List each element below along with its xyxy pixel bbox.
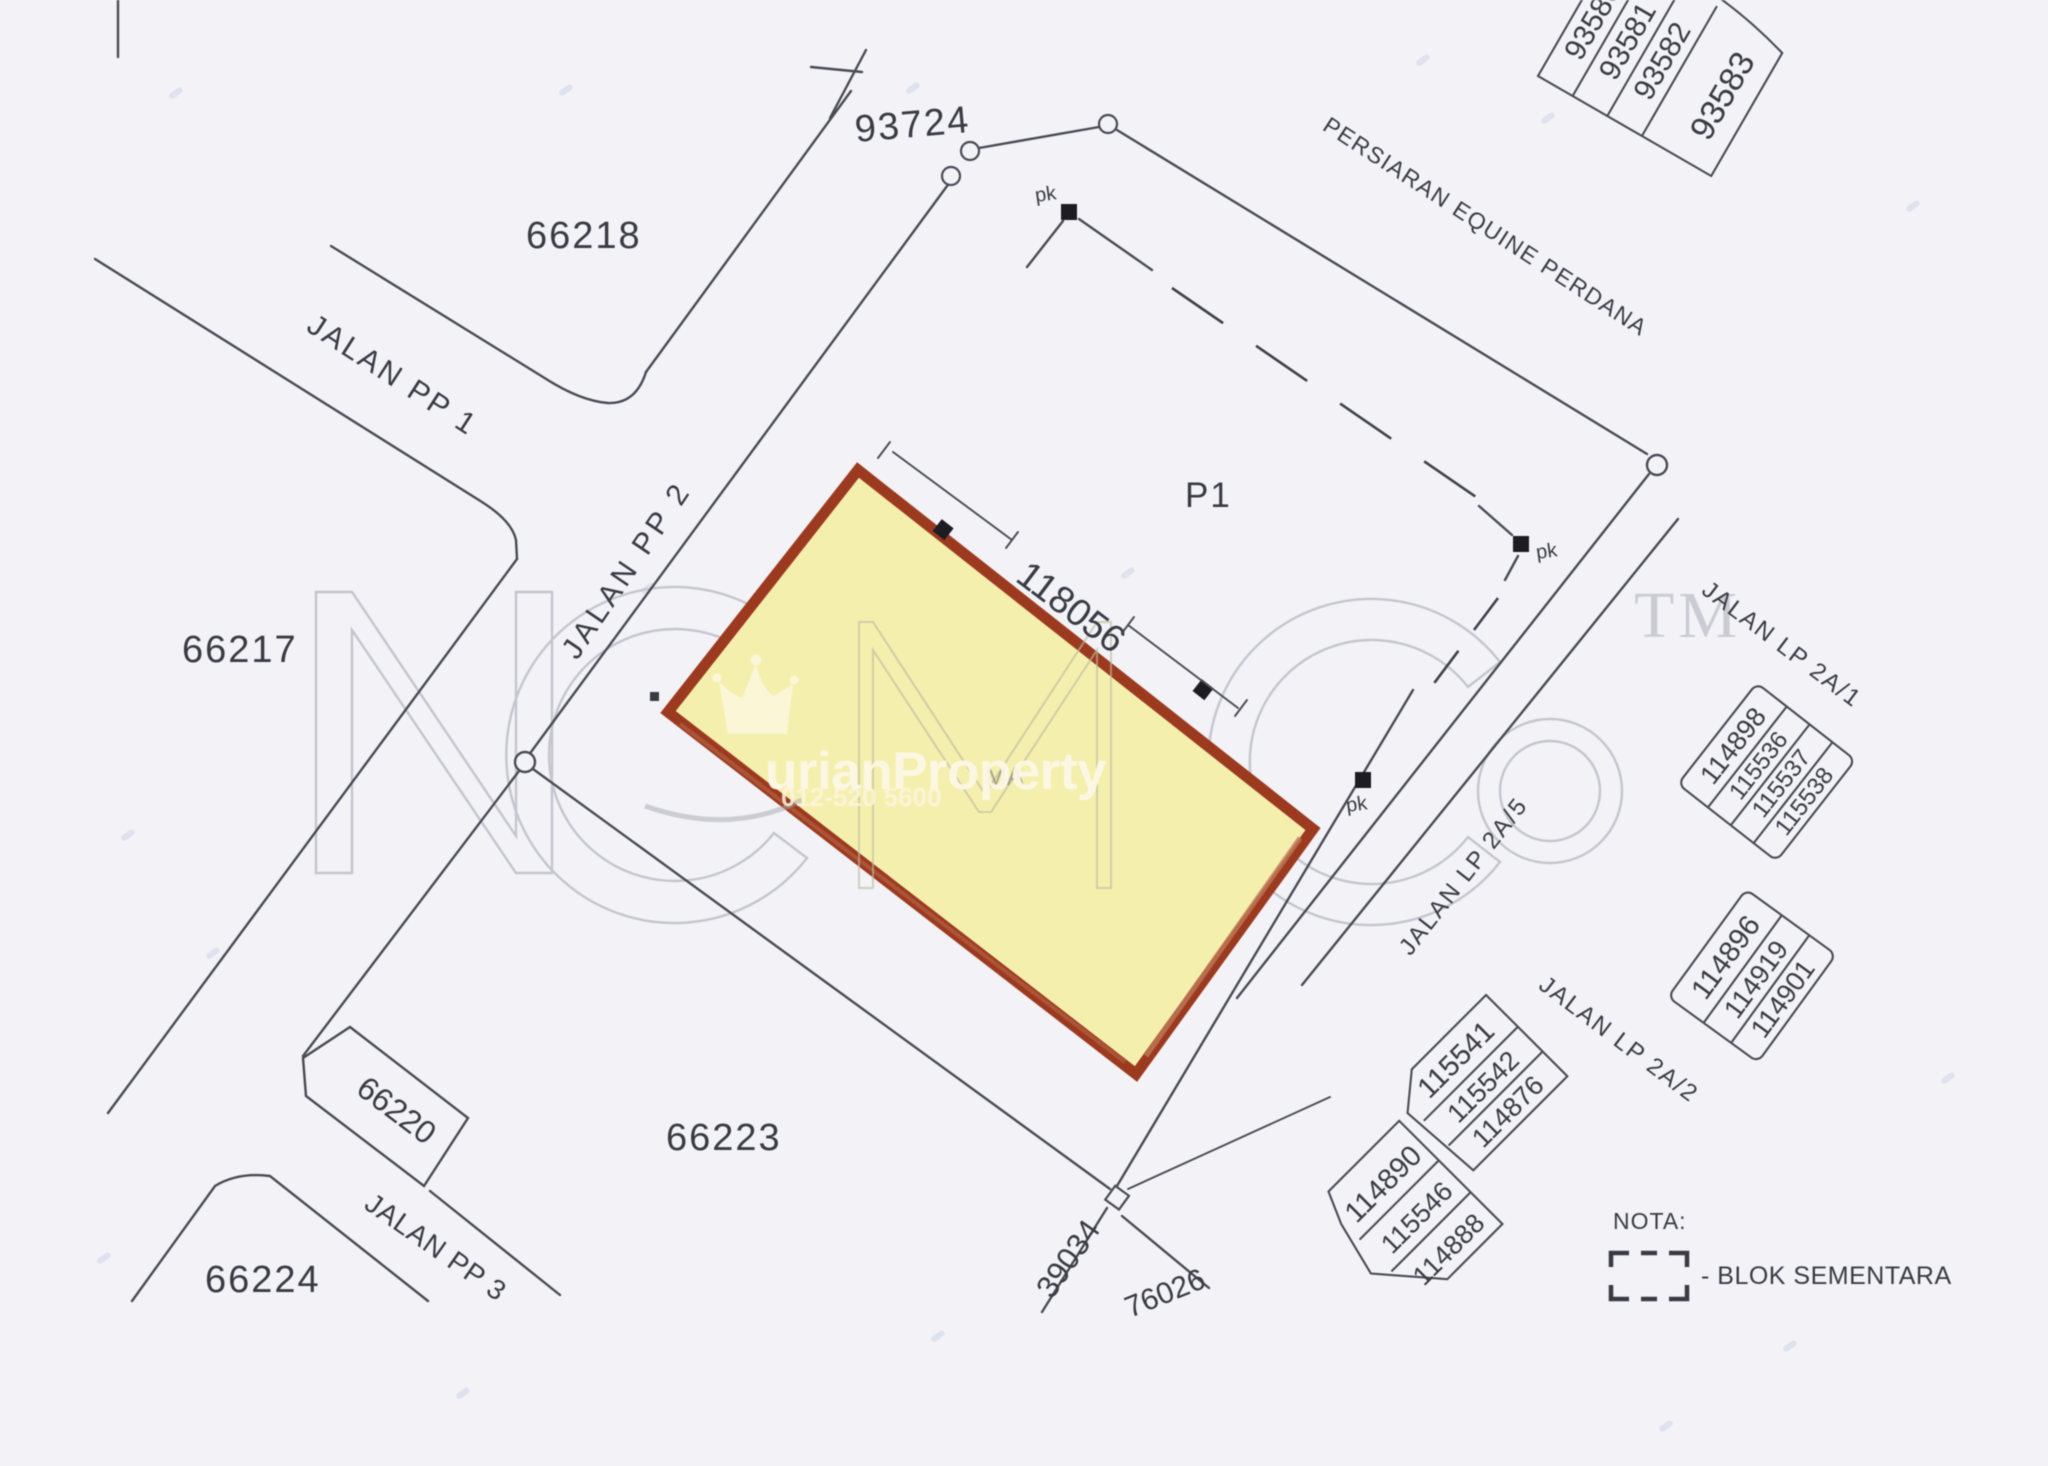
svg-text:66224: 66224	[205, 1259, 321, 1301]
svg-text:NOTA:: NOTA:	[1613, 1208, 1687, 1234]
svg-text:66217: 66217	[182, 629, 298, 671]
svg-text:- BLOK SEMENTARA: - BLOK SEMENTARA	[1701, 1262, 1952, 1290]
svg-text:66223: 66223	[666, 1117, 782, 1159]
svg-text:pk: pk	[1034, 182, 1059, 207]
svg-text:P1: P1	[1185, 476, 1232, 515]
svg-text:012-520 5600: 012-520 5600	[781, 782, 941, 812]
svg-text:66218: 66218	[526, 215, 642, 257]
svg-text:pk: pk	[1535, 539, 1560, 564]
svg-text:pk: pk	[1345, 792, 1370, 817]
